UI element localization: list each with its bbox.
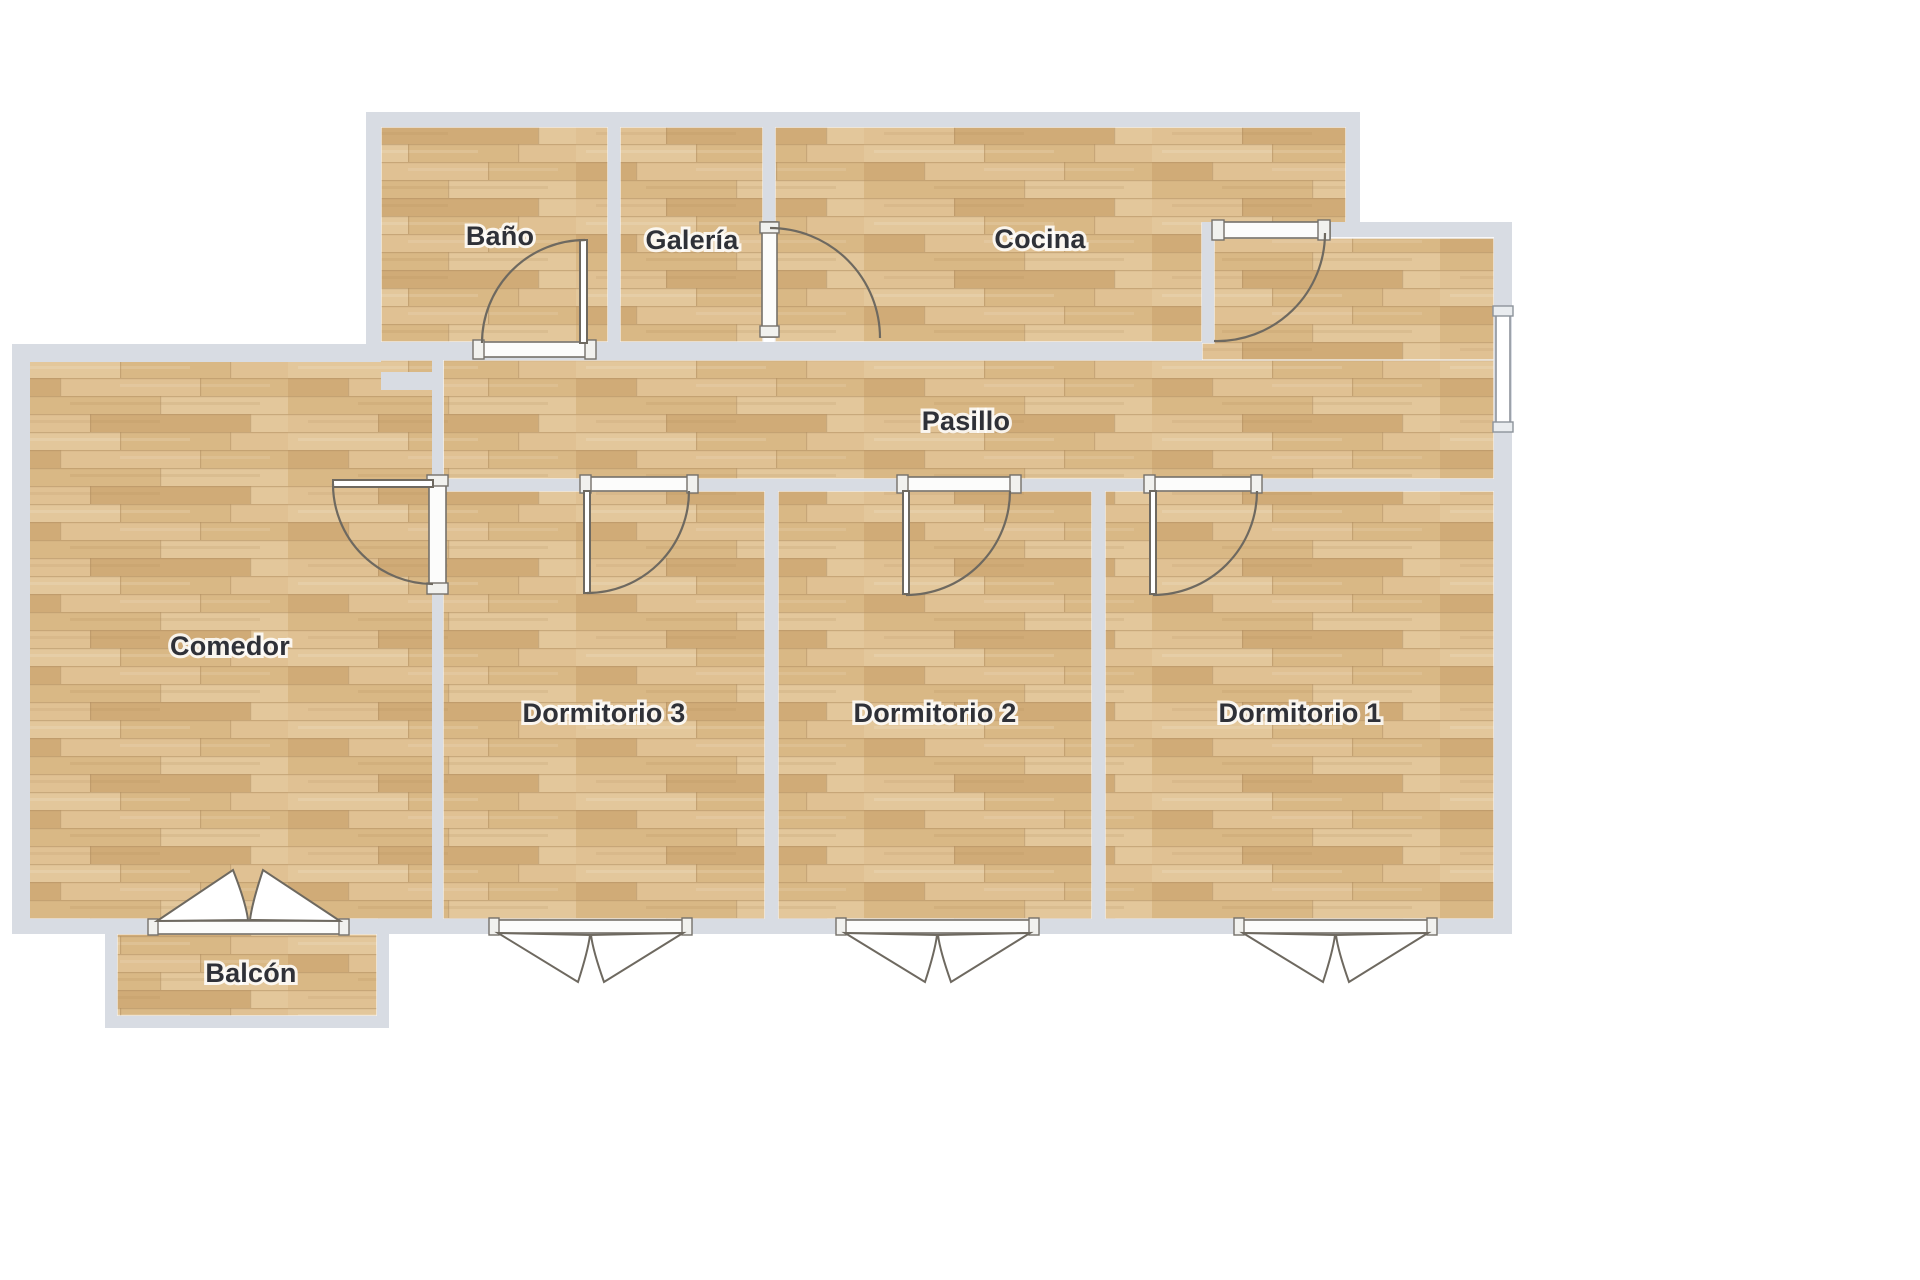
dormitorio1-door-leaf [1150, 491, 1156, 594]
dormitorio1-french-door [1234, 918, 1437, 982]
bano-label: Baño [466, 221, 534, 251]
wall-hall-top-outer [1330, 222, 1512, 237]
hall-window [1493, 306, 1513, 432]
wall-balcon-bottom [105, 1016, 389, 1028]
wall-balcon-left [105, 934, 117, 1028]
galeria-label: Galería [646, 225, 740, 255]
pasillo-label: Pasillo [922, 406, 1010, 436]
cocina-label: Cocina [994, 224, 1086, 254]
french-leaf [591, 933, 683, 982]
wall-top-left-outer [366, 112, 381, 362]
dormitorio1-label: Dormitorio 1 [1219, 698, 1382, 728]
wall-cocina-right-outer [1346, 112, 1360, 237]
wall-dorm3-dorm2 [765, 491, 778, 919]
wall-bano-galeria [608, 127, 620, 342]
french-leaf [1243, 933, 1335, 982]
wall-dorm2-dorm1 [1092, 491, 1105, 919]
wall-galeria-cocina [763, 127, 775, 222]
dormitorio3-door-leaf [584, 491, 590, 593]
dormitorio2-door-leaf [903, 491, 909, 594]
comedor-door-leaf [333, 480, 433, 487]
french-leaf [498, 933, 590, 982]
wall-comedor-top [12, 344, 381, 362]
wall-comedor-right [432, 360, 443, 919]
bano-door-leaf [580, 240, 587, 343]
french-leaf [938, 933, 1030, 982]
wall-top-outer [366, 112, 1360, 127]
floorplan-canvas: Baño Galería Cocina Pasillo Comedor Dorm… [0, 0, 1920, 1280]
wall-balcon-right [377, 934, 389, 1028]
french-leaf [1336, 933, 1428, 982]
french-leaf [845, 933, 937, 982]
wall-main-left-outer [12, 344, 30, 934]
comedor-label: Comedor [170, 631, 290, 661]
dormitorio2-french-door [836, 918, 1039, 982]
floorplan-svg: Baño Galería Cocina Pasillo Comedor Dorm… [0, 0, 1920, 1280]
dormitorio2-label: Dormitorio 2 [854, 698, 1017, 728]
dormitorio3-label: Dormitorio 3 [523, 698, 686, 728]
balcon-label: Balcón [205, 958, 296, 988]
dormitorio3-french-door [489, 918, 692, 982]
